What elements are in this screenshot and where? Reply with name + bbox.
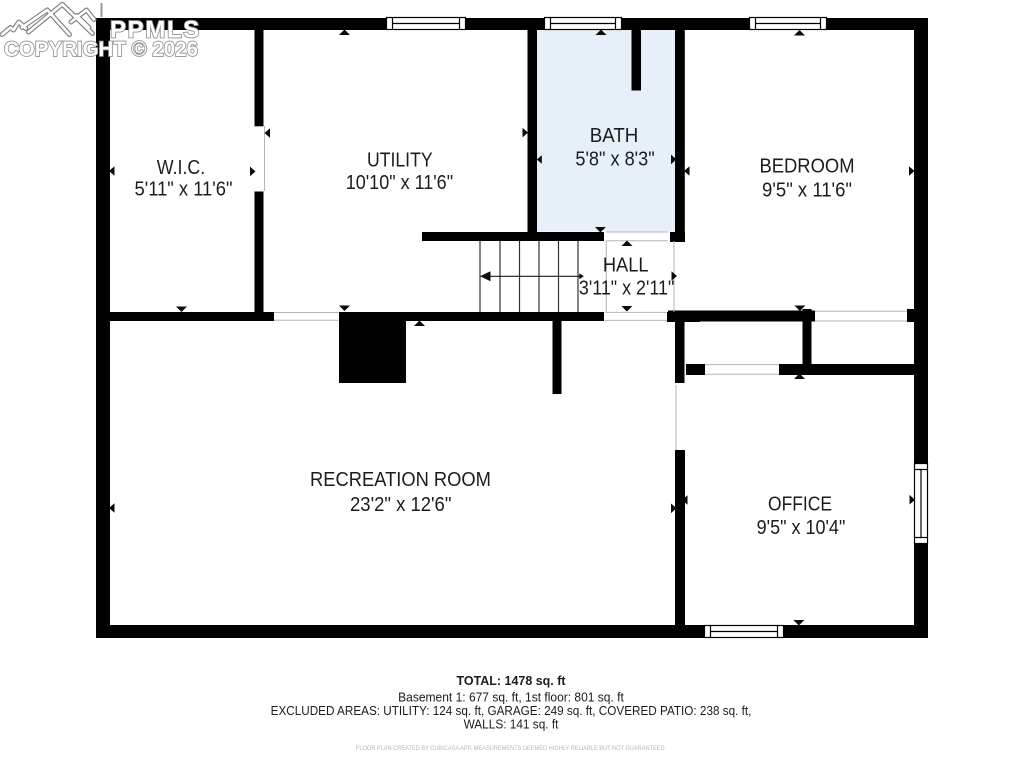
svg-text:9'5" x 10'4": 9'5" x 10'4" (757, 517, 846, 539)
svg-text:Basement 1: 677 sq. ft, 1st fl: Basement 1: 677 sq. ft, 1st floor: 801 s… (398, 690, 624, 704)
svg-text:5'8" x 8'3": 5'8" x 8'3" (575, 149, 654, 171)
svg-text:23'2" x 12'6": 23'2" x 12'6" (350, 494, 452, 516)
svg-text:BEDROOM: BEDROOM (759, 156, 854, 178)
svg-text:BATH: BATH (590, 124, 638, 147)
svg-text:EXCLUDED AREAS: UTILITY: 124 s: EXCLUDED AREAS: UTILITY: 124 sq. ft, GAR… (271, 703, 752, 717)
svg-text:W.I.C.: W.I.C. (157, 157, 205, 179)
svg-text:COPYRIGHT © 2026: COPYRIGHT © 2026 (4, 37, 198, 61)
svg-text:TOTAL: 1478 sq. ft: TOTAL: 1478 sq. ft (456, 673, 566, 688)
svg-text:WALLS: 141 sq. ft: WALLS: 141 sq. ft (464, 717, 559, 731)
svg-text:OFFICE: OFFICE (768, 493, 832, 515)
svg-text:3'11" x 2'11": 3'11" x 2'11" (579, 277, 674, 299)
svg-text:RECREATION ROOM: RECREATION ROOM (310, 469, 491, 491)
svg-text:10'10" x 11'6": 10'10" x 11'6" (346, 172, 453, 194)
svg-text:5'11" x 11'6": 5'11" x 11'6" (135, 179, 233, 201)
svg-text:UTILITY: UTILITY (367, 148, 433, 170)
svg-text:FLOOR PLAN CREATED BY CUBICASA: FLOOR PLAN CREATED BY CUBICASA APP. MEAS… (356, 745, 667, 752)
svg-text:9'5" x 11'6": 9'5" x 11'6" (762, 180, 852, 202)
svg-text:HALL: HALL (603, 255, 649, 277)
